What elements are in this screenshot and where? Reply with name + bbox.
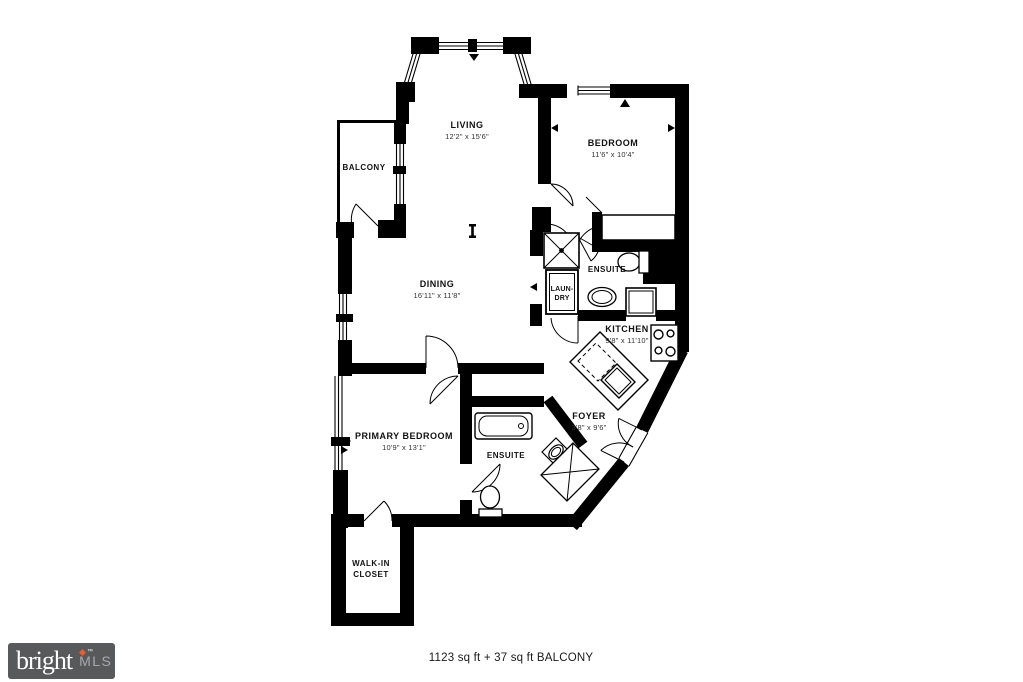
svg-text:BALCONY: BALCONY [342,163,385,172]
svg-text:ENSUITE: ENSUITE [588,265,626,274]
fridge-icon [626,288,656,316]
svg-text:10'9" x 13'1": 10'9" x 13'1" [382,443,426,452]
sink-icon [588,288,616,307]
svg-text:WALK-IN: WALK-IN [352,559,390,568]
room-label-balcony: BALCONY [342,163,385,172]
svg-text:DRY: DRY [554,295,569,302]
svg-text:BEDROOM: BEDROOM [588,138,639,148]
room-label-living: LIVING 12'2" x 15'6" [445,120,489,141]
room-label-bedroom: BEDROOM 11'6" x 10'4" [588,138,639,159]
area-summary-text: 1123 sq ft + 37 sq ft BALCONY [429,652,594,664]
toilet-icon [479,486,502,517]
shower-icon [544,233,579,268]
floorplan-drawing: LIVING 12'2" x 15'6" BALCONY BEDROOM 11'… [0,0,1023,682]
logo-brand-text: bright [16,648,72,674]
room-label-primary-bedroom: PRIMARY BEDROOM 10'9" x 13'1" [355,431,453,452]
floorplan-page: LIVING 12'2" x 15'6" BALCONY BEDROOM 11'… [0,0,1023,682]
room-label-ensuite-upper: ENSUITE [588,265,626,274]
wardrobe-icon [602,215,675,240]
svg-text:CLOSET: CLOSET [353,570,388,579]
svg-text:LAUN-: LAUN- [551,286,574,293]
logo-tm-mark: ™ [87,649,93,655]
svg-text:11'6" x 10'4": 11'6" x 10'4" [591,150,634,159]
room-label-ensuite-primary: ENSUITE [487,451,525,460]
svg-text:12'2" x 15'6": 12'2" x 15'6" [445,132,489,141]
svg-text:LIVING: LIVING [450,120,483,130]
svg-text:3'8" x 9'6": 3'8" x 9'6" [572,423,607,432]
room-label-dining: DINING 16'11" x 11'8" [414,279,461,300]
svg-text:DINING: DINING [420,279,455,289]
svg-text:ENSUITE: ENSUITE [487,451,525,460]
room-label-kitchen: KITCHEN 9'8" x 11'10" [605,324,649,345]
svg-text:PRIMARY BEDROOM: PRIMARY BEDROOM [355,431,453,441]
logo-suffix-text: MLS [79,653,112,669]
column-marker [469,224,476,238]
svg-text:FOYER: FOYER [572,411,606,421]
room-label-foyer: FOYER 3'8" x 9'6" [572,411,607,432]
svg-text:KITCHEN: KITCHEN [605,324,649,334]
brightmls-logo: bright ™ MLS [8,643,115,679]
stove-icon [651,325,678,361]
bathtub-icon [475,413,532,439]
room-label-walkin-closet: WALK-IN CLOSET [352,559,390,579]
svg-text:16'11" x 11'8": 16'11" x 11'8" [414,291,461,300]
svg-text:9'8" x 11'10": 9'8" x 11'10" [605,336,648,345]
